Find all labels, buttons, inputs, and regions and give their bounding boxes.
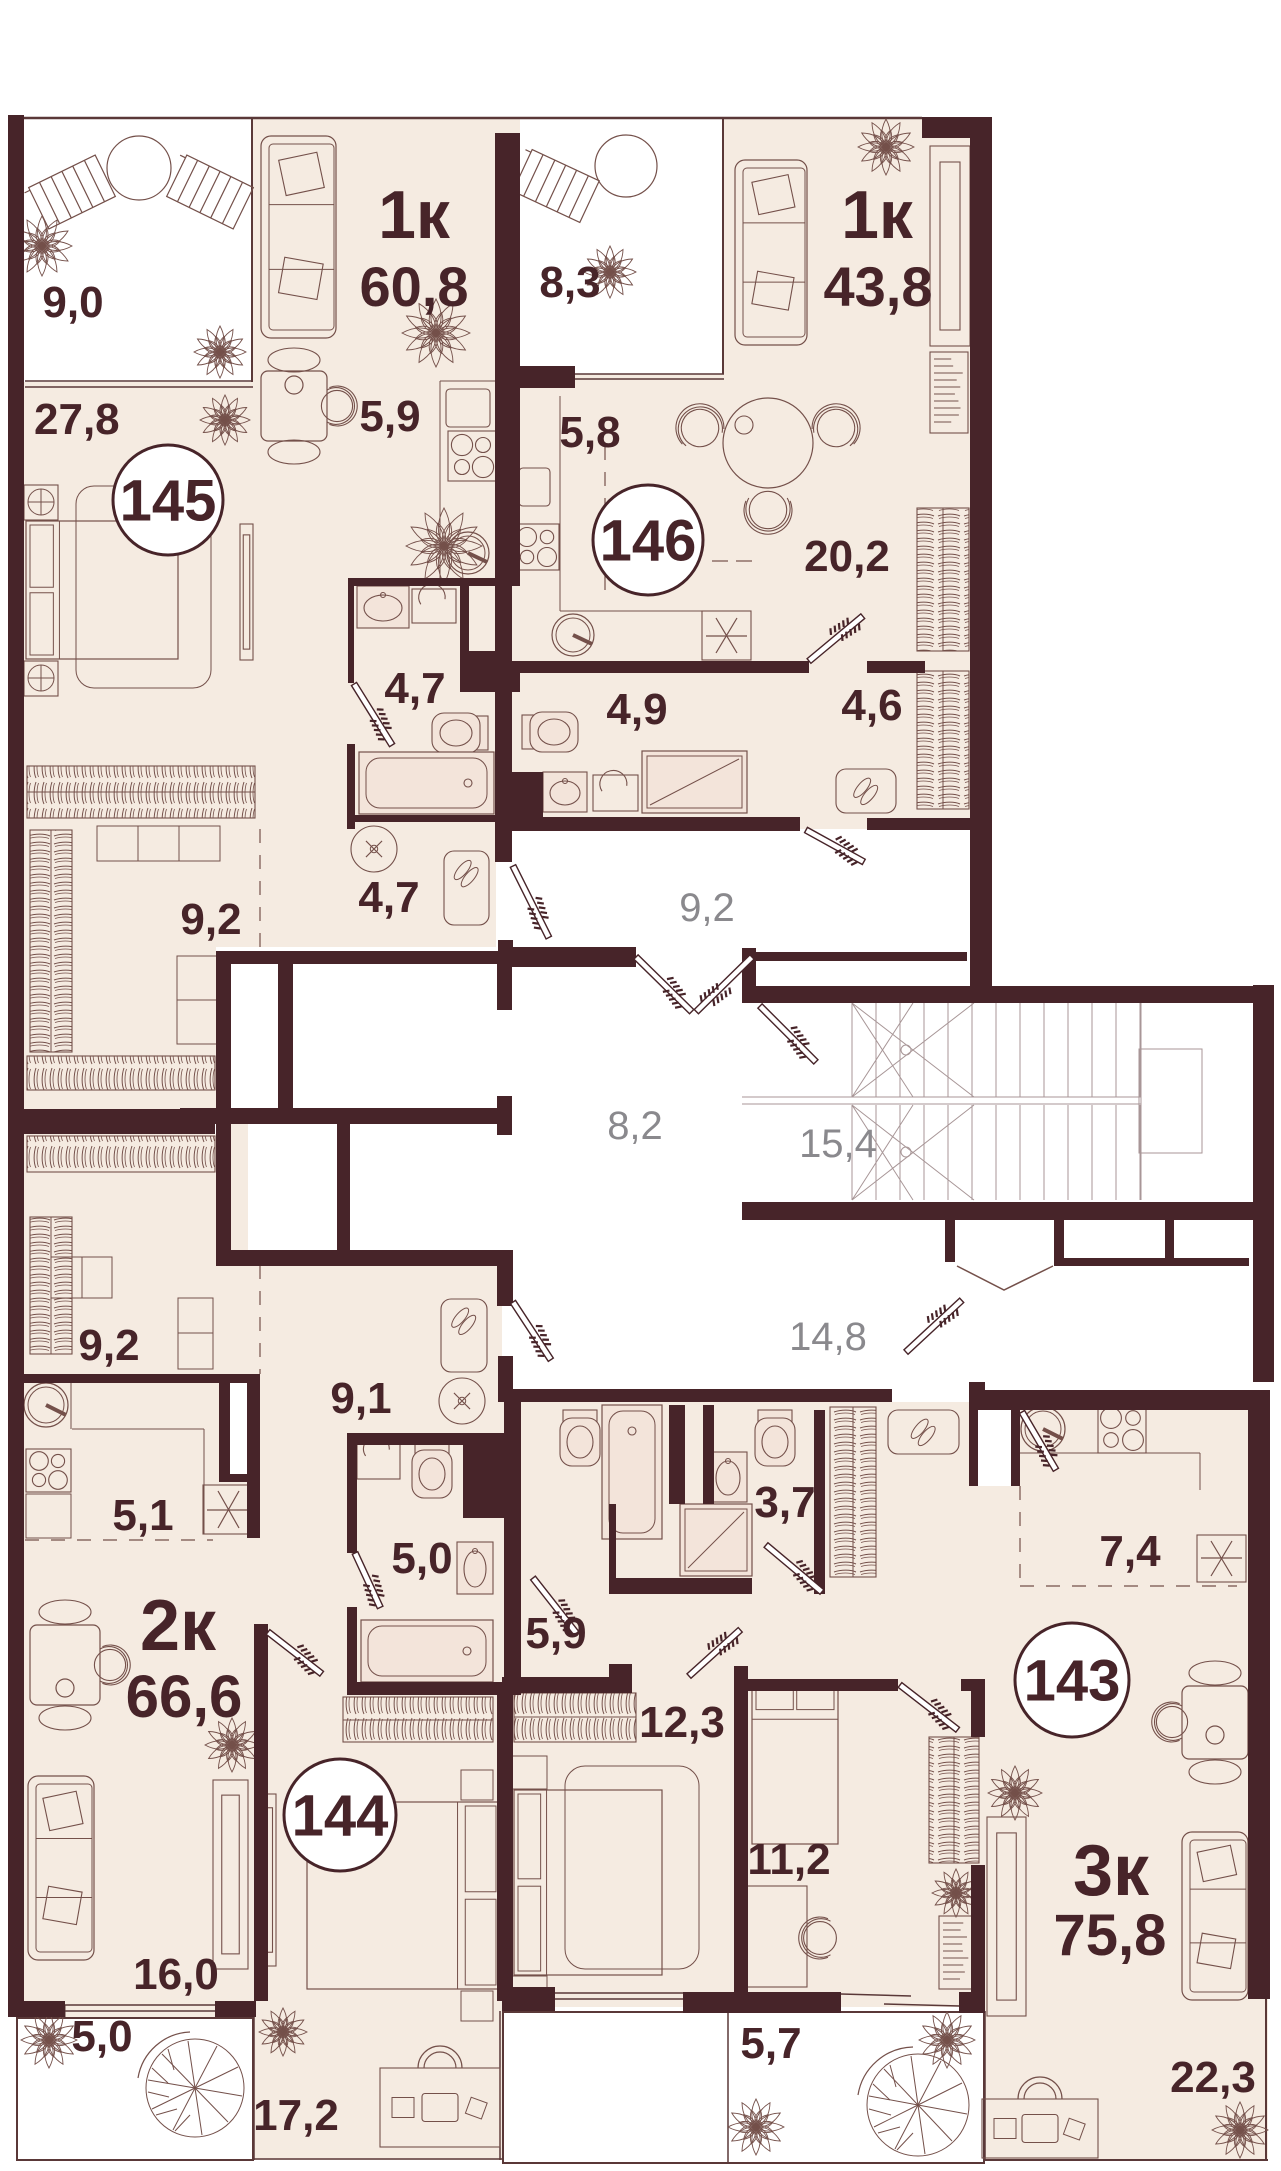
svg-text:27,8: 27,8 (34, 395, 120, 444)
svg-text:5,0: 5,0 (391, 1534, 452, 1583)
svg-text:22,3: 22,3 (1170, 2053, 1256, 2102)
svg-text:5,9: 5,9 (359, 392, 420, 441)
svg-text:3к: 3к (1073, 1831, 1150, 1911)
svg-text:146: 146 (600, 508, 697, 573)
svg-text:7,4: 7,4 (1099, 1527, 1161, 1576)
svg-text:17,2: 17,2 (253, 2091, 339, 2140)
svg-text:144: 144 (292, 1783, 389, 1848)
svg-text:9,2: 9,2 (78, 1321, 139, 1370)
svg-text:8,2: 8,2 (607, 1104, 663, 1148)
svg-text:75,8: 75,8 (1054, 1903, 1167, 1968)
svg-text:4,7: 4,7 (384, 664, 445, 713)
svg-text:66,6: 66,6 (126, 1663, 243, 1730)
svg-text:5,8: 5,8 (559, 408, 620, 457)
svg-text:11,2: 11,2 (747, 1835, 830, 1884)
svg-text:14,8: 14,8 (789, 1315, 867, 1359)
svg-text:2к: 2к (140, 1586, 217, 1666)
svg-text:9,2: 9,2 (679, 886, 735, 930)
svg-text:5,1: 5,1 (112, 1491, 173, 1540)
svg-text:4,6: 4,6 (841, 681, 902, 730)
svg-text:3,7: 3,7 (754, 1478, 815, 1527)
svg-text:8,3: 8,3 (539, 258, 600, 307)
svg-text:4,9: 4,9 (606, 685, 667, 734)
svg-text:145: 145 (120, 468, 217, 533)
svg-text:9,2: 9,2 (180, 895, 241, 944)
svg-text:4,7: 4,7 (358, 873, 419, 922)
svg-text:9,0: 9,0 (42, 278, 103, 327)
svg-text:143: 143 (1024, 1648, 1121, 1713)
svg-text:5,9: 5,9 (525, 1609, 586, 1658)
svg-text:1к: 1к (378, 177, 451, 253)
svg-text:1к: 1к (841, 177, 914, 253)
svg-text:12,3: 12,3 (639, 1698, 725, 1747)
svg-text:16,0: 16,0 (133, 1950, 219, 1999)
svg-text:43,8: 43,8 (824, 255, 933, 318)
svg-text:9,1: 9,1 (330, 1374, 391, 1423)
svg-text:15,4: 15,4 (799, 1122, 877, 1166)
svg-text:20,2: 20,2 (804, 532, 890, 581)
svg-text:5,7: 5,7 (740, 2019, 801, 2068)
svg-text:5,0: 5,0 (71, 2012, 132, 2061)
svg-text:60,8: 60,8 (360, 255, 469, 318)
